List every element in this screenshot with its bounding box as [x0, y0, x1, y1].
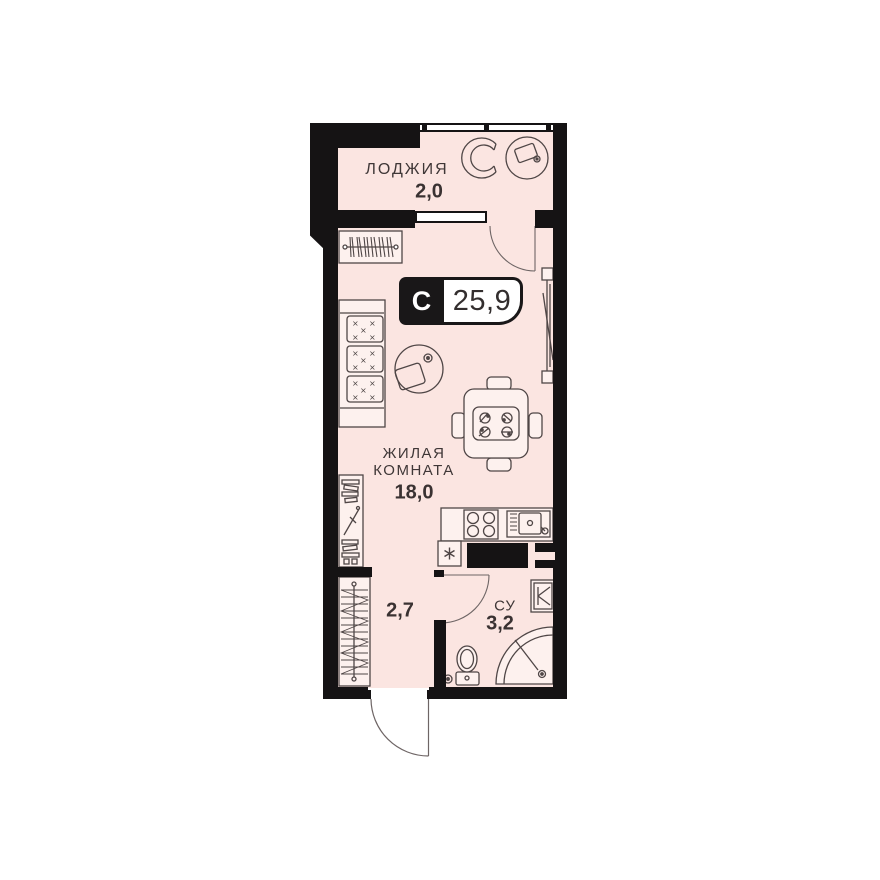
wall-left-lower	[323, 248, 338, 698]
svg-text:×: ×	[352, 349, 359, 358]
hallway-area: 2,7	[386, 600, 414, 623]
kitchen-counter-icon	[441, 508, 553, 541]
svg-text:×: ×	[352, 393, 359, 402]
fridge-icon	[438, 541, 461, 566]
svg-text:×: ×	[369, 319, 376, 328]
loggia-label: ЛОДЖИЯ	[365, 161, 448, 179]
wall-right	[553, 123, 567, 698]
shower-icon	[496, 627, 553, 684]
entrance-door-arc	[367, 690, 431, 756]
loggia-door-arc	[490, 226, 535, 271]
dining-set-icon	[452, 377, 542, 471]
svg-text:×: ×	[369, 333, 376, 342]
apartment-badge: С 25,9	[399, 277, 523, 325]
wall-bottom-left	[323, 687, 368, 699]
wall-bath-door-jamb	[434, 570, 444, 577]
badge-type-letter: С	[399, 277, 444, 325]
loggia-window	[420, 123, 553, 132]
loggia-area: 2,0	[415, 181, 443, 204]
window-tick-icon	[484, 125, 489, 130]
wall-loggia-partition-pier	[535, 210, 553, 228]
wardrobe-icon	[339, 231, 402, 263]
radiator-icon	[542, 268, 553, 383]
bookshelf-icon	[339, 475, 363, 567]
svg-text:×: ×	[360, 326, 367, 335]
toilet-icon	[456, 646, 479, 685]
wall-left-upper	[310, 123, 338, 248]
living-room-label: ЖИЛАЯ КОМНАТА	[373, 445, 455, 479]
svg-text:×: ×	[352, 319, 359, 328]
wall-bottom-right	[429, 687, 567, 699]
window-tick-icon	[546, 125, 551, 130]
wall-bathroom-vertical	[434, 620, 446, 687]
svg-text:×: ×	[352, 333, 359, 342]
svg-text:×: ×	[369, 363, 376, 372]
wall-hall-partition	[323, 567, 372, 577]
side-table-icon	[506, 137, 548, 179]
svg-text:×: ×	[360, 356, 367, 365]
armchair-icon	[462, 138, 496, 178]
svg-text:×: ×	[369, 393, 376, 402]
svg-text:×: ×	[369, 349, 376, 358]
washing-machine-icon	[531, 580, 555, 612]
svg-text:×: ×	[352, 379, 359, 388]
svg-text:×: ×	[360, 386, 367, 395]
living-room-area: 18,0	[395, 482, 434, 505]
window-tick-icon	[422, 125, 427, 130]
coffee-table-icon	[395, 345, 443, 393]
living-room-label-line2: КОМНАТА	[373, 462, 455, 479]
sofa-icon: ××××× ××××× ×××××	[339, 300, 385, 427]
bathroom-area: 3,2	[486, 613, 514, 636]
wall-loggia-partition	[338, 210, 415, 228]
shaft-notch	[535, 552, 555, 560]
shaft-slot	[528, 543, 535, 568]
badge-total-area: 25,9	[444, 277, 523, 325]
svg-text:×: ×	[369, 379, 376, 388]
living-room-label-line1: ЖИЛАЯ	[373, 445, 455, 462]
bathroom-door-arc	[441, 575, 489, 623]
floorplan-canvas: ××××× ××××× ×××××	[0, 0, 880, 880]
hall-wardrobe-icon	[339, 577, 370, 686]
partition-window	[415, 211, 487, 223]
svg-text:×: ×	[352, 363, 359, 372]
